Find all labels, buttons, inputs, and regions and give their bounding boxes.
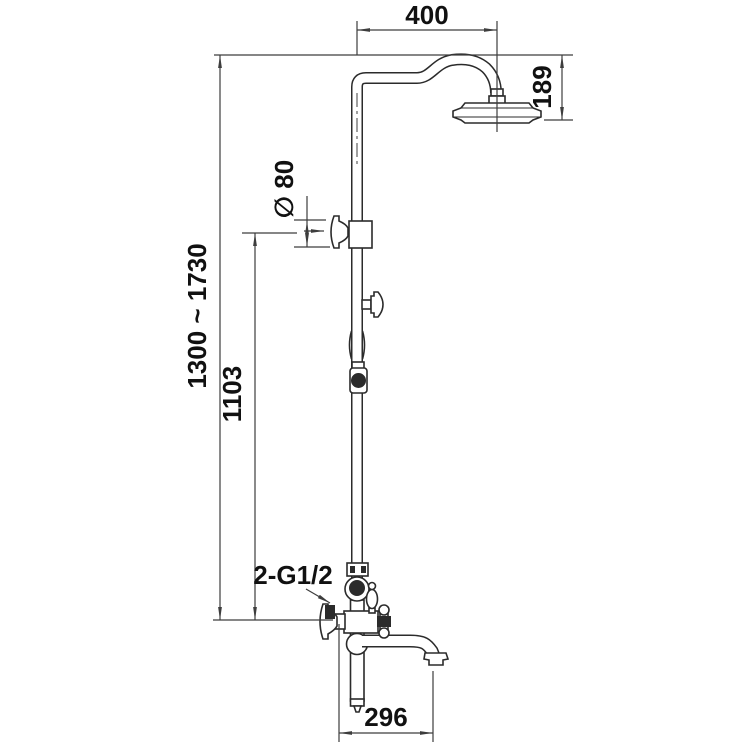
hose-end-fitting xyxy=(351,699,365,712)
dim-arm-reach: 400 xyxy=(357,0,497,55)
shower-fixture xyxy=(320,59,541,712)
upper-wall-flange xyxy=(331,216,372,248)
dim-flange-diameter: ∅ 80 xyxy=(269,160,330,247)
dim-riser-height-label: 1103 xyxy=(217,366,247,422)
dim-arm-reach-label: 400 xyxy=(405,0,448,30)
spout-mouth xyxy=(424,653,448,665)
dim-overall-height: 1300 ~ 1730 xyxy=(182,55,220,620)
tub-spout xyxy=(362,641,448,665)
dim-flange-diameter-label: ∅ 80 xyxy=(269,160,299,218)
dim-head-height-label: 189 xyxy=(527,65,557,108)
valve-body xyxy=(344,611,378,633)
riser-connector xyxy=(347,563,368,576)
technical-drawing-canvas: 400 189 1300 ~ 1730 1103 ∅ 80 2-G1/2 296 xyxy=(0,0,750,750)
diverter-knob xyxy=(362,292,383,317)
dim-spout-reach-label: 296 xyxy=(364,702,407,732)
dim-overall-height-label: 1300 ~ 1730 xyxy=(182,243,212,388)
shower-system-technical-drawing: 400 189 1300 ~ 1730 1103 ∅ 80 2-G1/2 296 xyxy=(0,0,750,750)
slider-bracket xyxy=(350,362,367,393)
dim-inlet-thread: 2-G1/2 xyxy=(253,560,333,603)
cross-handle xyxy=(377,605,391,638)
inlet-connection xyxy=(325,605,335,619)
dim-inlet-thread-label: 2-G1/2 xyxy=(253,560,333,590)
riser-pipe-and-shower-arm xyxy=(357,59,496,610)
valve-top-ball xyxy=(345,577,369,601)
lever-handle xyxy=(367,583,378,614)
